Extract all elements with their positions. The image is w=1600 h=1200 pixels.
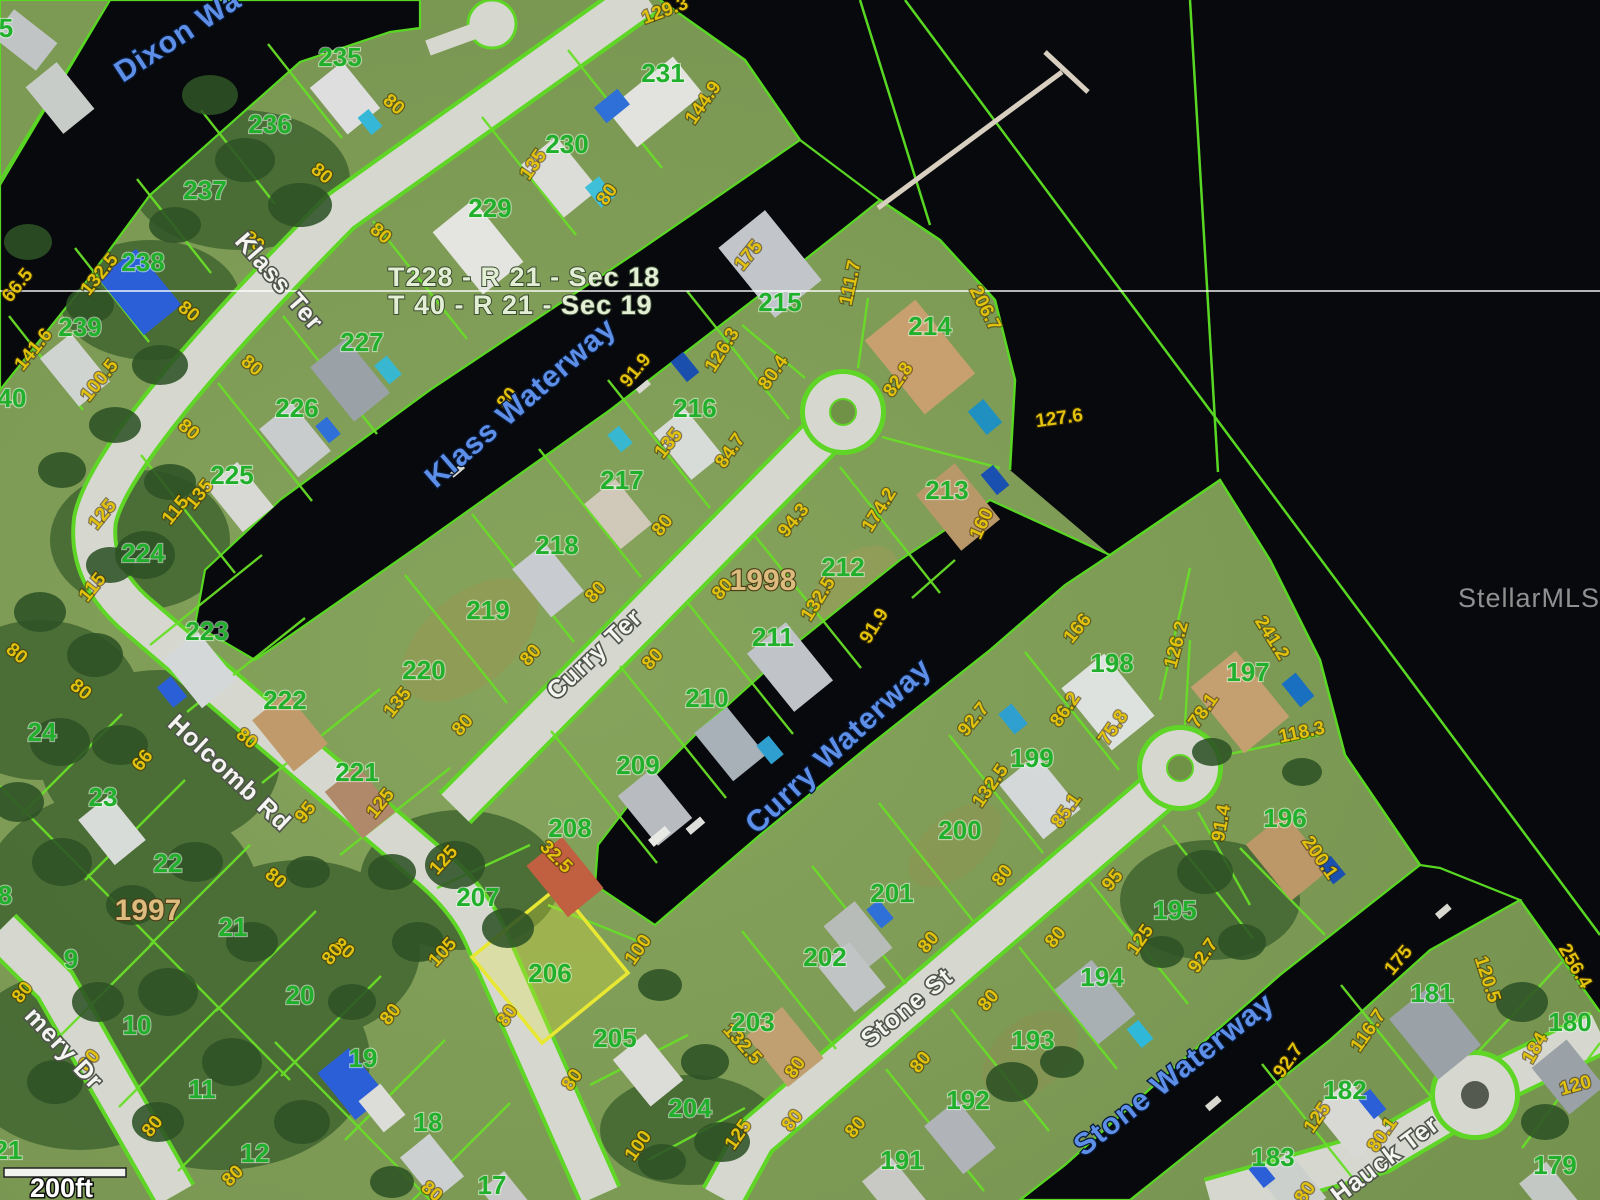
lot-number: 23 <box>89 782 118 812</box>
lot-number: 5 <box>0 13 13 43</box>
tree <box>72 982 124 1022</box>
lot-number: 231 <box>641 58 684 88</box>
lot-number: 224 <box>121 538 165 568</box>
section-label-1: T228 - R 21 - Sec 18 <box>388 262 660 292</box>
lot-number: 197 <box>1226 657 1269 687</box>
lot-number: 206 <box>528 958 571 988</box>
tree <box>4 224 52 260</box>
tree <box>1496 982 1548 1022</box>
lot-number: 21 <box>219 912 248 942</box>
lot-number: 208 <box>548 813 591 843</box>
lot-number: 12 <box>241 1138 270 1168</box>
lot-number: 9 <box>64 944 78 974</box>
lot-number: 180 <box>1548 1007 1591 1037</box>
lot-number: 217 <box>600 465 643 495</box>
lot-number: 221 <box>335 757 378 787</box>
tree <box>1177 850 1233 894</box>
tree <box>38 452 86 488</box>
tree <box>1521 1104 1569 1140</box>
tree <box>681 1044 729 1080</box>
plat-number: 1998 <box>730 564 797 597</box>
section-label-2: T 40 - R 21 - Sec 19 <box>388 290 653 320</box>
aerial-parcel-map[interactable]: 129.3144.98080808066.5132.5141.6100.5801… <box>0 0 1600 1200</box>
map-canvas: 129.3144.98080808066.5132.5141.6100.5801… <box>0 0 1600 1200</box>
lot-number: 10 <box>123 1010 152 1040</box>
tree <box>67 633 123 677</box>
tree <box>482 908 534 948</box>
lot-number: 237 <box>183 175 226 205</box>
lot-number: 195 <box>1153 895 1196 925</box>
tree <box>638 969 682 1001</box>
lot-number: 236 <box>248 109 291 139</box>
lot-number: 20 <box>286 980 315 1010</box>
tree <box>14 592 66 632</box>
lot-number: 239 <box>58 312 101 342</box>
lot-number: 207 <box>456 882 499 912</box>
lot-number: 230 <box>545 129 588 159</box>
lot-number: 18 <box>414 1107 443 1137</box>
tree <box>182 75 238 115</box>
lot-number: 213 <box>925 475 968 505</box>
lot-number: 199 <box>1010 743 1053 773</box>
lot-number: 205 <box>593 1023 636 1053</box>
tree <box>328 984 376 1020</box>
lot-number: 191 <box>880 1145 923 1175</box>
tree <box>138 968 198 1016</box>
lot-number: 19 <box>349 1043 378 1073</box>
lot-number: 210 <box>685 683 728 713</box>
lot-number: 223 <box>185 616 228 646</box>
lot-number: 201 <box>870 878 913 908</box>
lot-number: 225 <box>210 460 253 490</box>
lot-number: 215 <box>758 287 801 317</box>
lot-number: 226 <box>275 393 318 423</box>
tree <box>1282 758 1322 786</box>
lot-number: 227 <box>340 327 383 357</box>
plat-number: 1997 <box>115 894 182 927</box>
tree <box>274 1100 330 1144</box>
lot-number: 222 <box>263 685 306 715</box>
lot-number: 229 <box>468 193 511 223</box>
lot-number: 17 <box>478 1170 507 1200</box>
tree <box>286 856 330 888</box>
tree <box>32 838 92 886</box>
lot-number: 211 <box>752 622 794 652</box>
tree <box>268 183 332 227</box>
tree <box>1218 924 1266 960</box>
lot-number: 203 <box>731 1007 774 1037</box>
lot-number: 235 <box>318 42 361 72</box>
tree <box>132 345 188 385</box>
lot-number: 40 <box>0 383 26 413</box>
lot-number: 218 <box>535 530 578 560</box>
lot-number: 212 <box>821 552 864 582</box>
lot-number: 204 <box>668 1093 712 1123</box>
lot-number: 21 <box>0 1135 22 1165</box>
lot-number: 196 <box>1263 803 1306 833</box>
lot-number: 238 <box>121 247 164 277</box>
tree <box>1192 738 1232 766</box>
lot-number: 182 <box>1323 1075 1366 1105</box>
lot-number: 193 <box>1011 1025 1054 1055</box>
tree <box>370 1166 414 1198</box>
lot-number: 194 <box>1080 962 1124 992</box>
lot-number: 11 <box>188 1074 216 1104</box>
tree <box>986 1062 1038 1102</box>
lot-number: 8 <box>0 880 12 910</box>
lot-number: 183 <box>1251 1142 1294 1172</box>
scale-label: 200ft <box>30 1173 93 1200</box>
tree <box>368 854 416 890</box>
lot-number: 198 <box>1090 648 1133 678</box>
tree <box>89 407 141 443</box>
lot-number: 22 <box>154 848 183 878</box>
lot-number: 24 <box>28 717 57 747</box>
stellar-mls-watermark: StellarMLS <box>1458 583 1600 613</box>
lot-number: 181 <box>1410 978 1453 1008</box>
lot-number: 202 <box>803 942 846 972</box>
lot-number: 192 <box>946 1085 989 1115</box>
lot-number: 220 <box>402 655 445 685</box>
lot-number: 214 <box>908 311 952 341</box>
lot-number: 219 <box>466 595 509 625</box>
lot-number: 216 <box>673 393 716 423</box>
lot-number: 209 <box>616 750 659 780</box>
tree <box>149 207 201 243</box>
lot-number: 200 <box>938 815 981 845</box>
lot-number: 179 <box>1533 1150 1576 1180</box>
